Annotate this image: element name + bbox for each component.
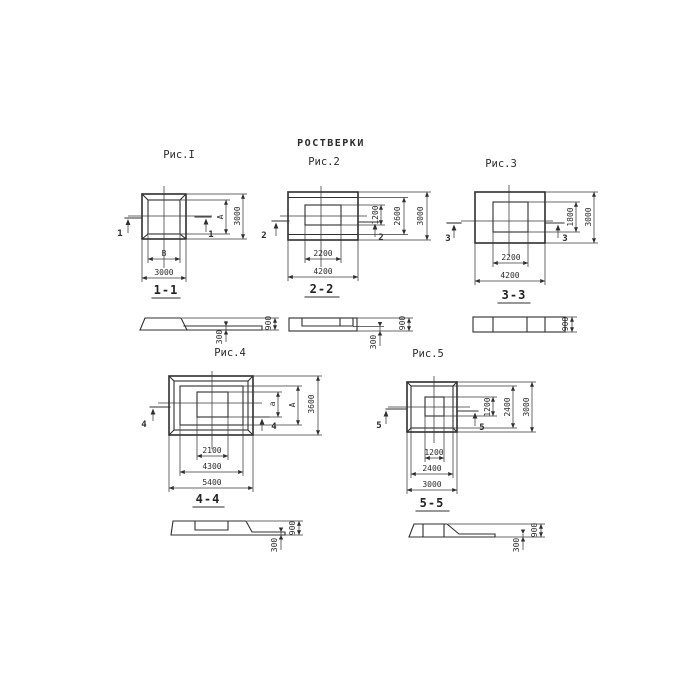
- cut-label: 5: [376, 421, 381, 431]
- figure-4-label: Рис.4: [214, 347, 246, 359]
- dim-label: 1200: [371, 205, 380, 224]
- dim-label: 1800: [566, 207, 575, 226]
- dim-label: 2400: [422, 464, 441, 473]
- drawing-canvas: РОСТВЕРКИ Рис.I 1 1 А 3000: [0, 0, 700, 700]
- figure-1-plan: [128, 186, 212, 268]
- figure-5-label: Рис.5: [412, 348, 444, 360]
- figure-1-dimensions: А 3000 В 3000: [142, 194, 247, 282]
- cut-label: 3: [445, 234, 450, 244]
- dim-label: В: [162, 249, 167, 258]
- figure-5-group: Рис.5 5 5 1200 2400 3000: [376, 348, 545, 552]
- cut-label: 3: [562, 234, 567, 244]
- dim-label: А: [216, 214, 225, 219]
- dim-label: 3000: [416, 206, 425, 225]
- section-5-label: 5-5: [420, 496, 445, 510]
- figure-3-label: Рис.3: [485, 158, 517, 170]
- dim-label: 4300: [202, 462, 221, 471]
- figure-3-cut-marks: 3 3: [445, 223, 567, 244]
- figure-2-label: Рис.2: [308, 156, 340, 168]
- dim-label: 900: [288, 521, 297, 536]
- figure-2-group: Рис.2 2 2 1200 2600 3000: [261, 156, 431, 349]
- dim-label: 3000: [154, 268, 173, 277]
- section-1-label: 1-1: [154, 283, 179, 297]
- dim-label: 900: [398, 316, 407, 331]
- section-4-label: 4-4: [196, 492, 221, 506]
- figure-4-group: Рис.4 4 4 а А 3600: [141, 347, 322, 552]
- dim-label: 900: [561, 317, 570, 332]
- dim-label: 2100: [202, 446, 221, 455]
- dim-label: 4200: [313, 267, 332, 276]
- figure-5-dimensions: 1200 2400 3000 1200 2400 3000: [407, 382, 536, 494]
- section-3-label: 3-3: [502, 288, 527, 302]
- figure-1-label: Рис.I: [163, 149, 195, 161]
- dim-label: 1200: [424, 448, 443, 457]
- drawing-title: РОСТВЕРКИ: [297, 138, 365, 149]
- figure-1-group: Рис.I 1 1 А 3000 В: [117, 149, 279, 344]
- section-2-view: 900 300: [289, 316, 413, 350]
- cut-label: 4: [271, 422, 277, 432]
- dim-label: 2600: [393, 206, 402, 225]
- dim-label: 300: [215, 330, 224, 345]
- section-5-view: 900 300: [409, 523, 545, 553]
- dim-label: 5400: [202, 478, 221, 487]
- dim-label: 3000: [422, 480, 441, 489]
- dim-label: 300: [369, 335, 378, 350]
- dim-label: 900: [530, 523, 539, 538]
- dim-label: 900: [264, 316, 273, 331]
- dim-label: 4200: [500, 271, 519, 280]
- section-2-label: 2-2: [310, 282, 335, 296]
- dim-label: 2200: [501, 253, 520, 262]
- cut-label: 1: [208, 230, 213, 240]
- dim-label: 1200: [483, 397, 492, 416]
- cut-label: 1: [117, 229, 122, 239]
- scanned-drawing-page: РОСТВЕРКИ Рис.I 1 1 А 3000: [0, 0, 700, 700]
- dim-label: 3000: [584, 207, 593, 226]
- dim-label: 3000: [522, 397, 531, 416]
- figure-4-cut-marks: 4 4: [141, 407, 277, 432]
- figure-4-plan: [158, 371, 262, 449]
- figure-3-group: Рис.3 3 3 1800 3000 2200: [445, 158, 598, 332]
- dim-label: 300: [270, 538, 279, 553]
- dim-label: 2400: [503, 397, 512, 416]
- dim-label: 3000: [233, 206, 242, 225]
- section-4-view: 900 300: [171, 521, 303, 553]
- dim-label: 3600: [307, 394, 316, 413]
- dim-label: 300: [512, 538, 521, 553]
- cut-label: 4: [141, 420, 147, 430]
- section-1-view: 300 900: [140, 316, 279, 345]
- figure-4-dimensions: а А 3600 2100 4300 5400: [169, 376, 322, 492]
- dim-label: 2200: [313, 249, 332, 258]
- section-3-view: 900: [473, 317, 577, 332]
- figure-5-cut-marks: 5 5: [376, 409, 484, 433]
- cut-label: 2: [261, 231, 266, 241]
- figure-1-cut-marks: 1 1: [117, 217, 213, 240]
- dim-label: а: [268, 401, 277, 406]
- dim-label: А: [288, 402, 297, 407]
